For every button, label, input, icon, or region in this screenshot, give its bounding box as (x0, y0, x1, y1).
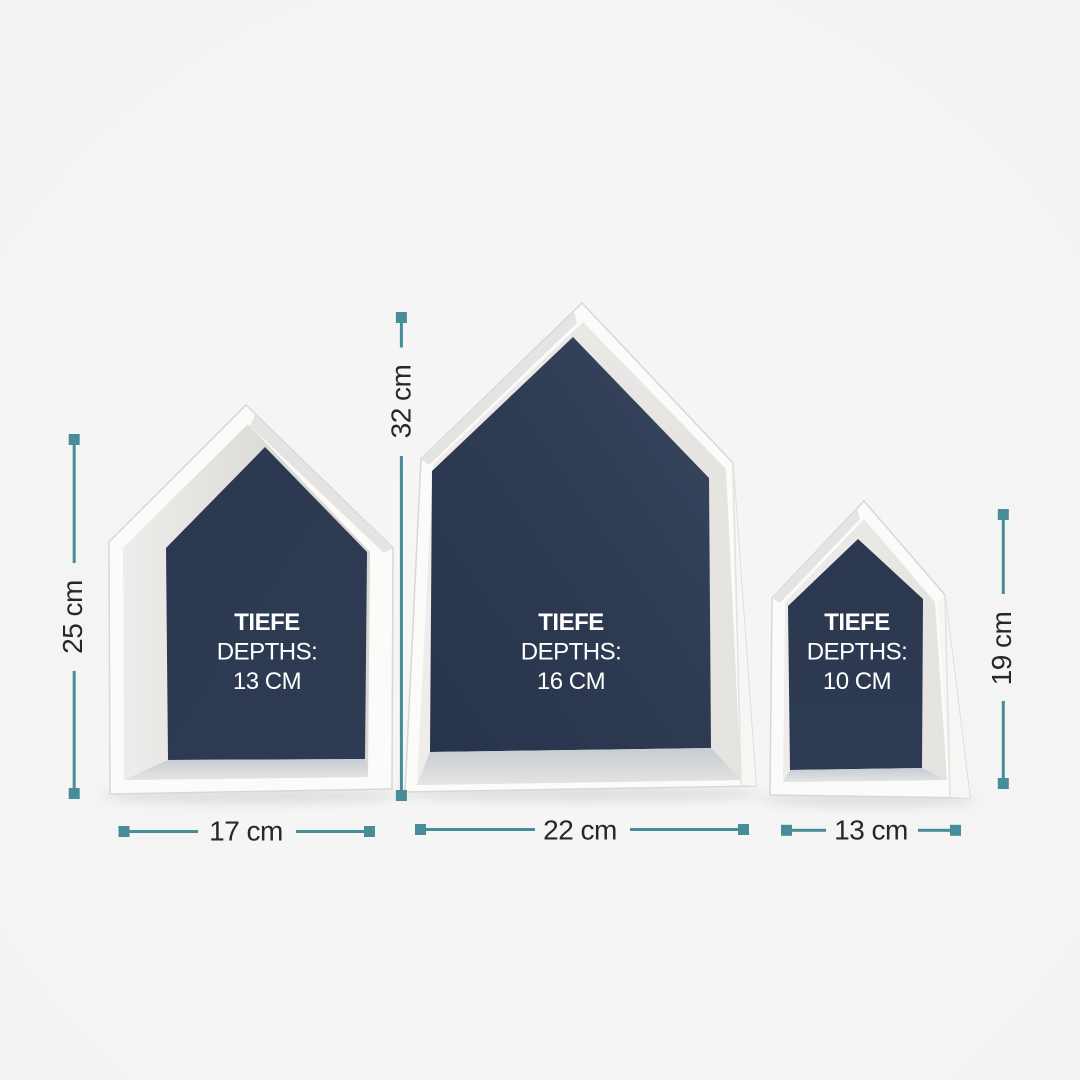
svg-text:13 CM: 13 CM (233, 668, 301, 695)
svg-text:TIEFE: TIEFE (234, 609, 300, 636)
svg-text:25 cm: 25 cm (57, 580, 88, 654)
svg-text:10 CM: 10 CM (823, 668, 891, 695)
svg-text:16 CM: 16 CM (537, 668, 605, 695)
svg-text:22 cm: 22 cm (543, 815, 617, 846)
svg-text:TIEFE: TIEFE (538, 609, 604, 636)
svg-text:13 cm: 13 cm (834, 814, 908, 845)
svg-text:32 cm: 32 cm (386, 365, 417, 439)
svg-text:DEPTHS:: DEPTHS: (217, 639, 318, 666)
svg-text:DEPTHS:: DEPTHS: (521, 639, 622, 666)
svg-text:17 cm: 17 cm (209, 816, 283, 847)
svg-text:19 cm: 19 cm (986, 612, 1017, 686)
svg-text:TIEFE: TIEFE (824, 609, 890, 636)
svg-text:DEPTHS:: DEPTHS: (807, 639, 908, 666)
